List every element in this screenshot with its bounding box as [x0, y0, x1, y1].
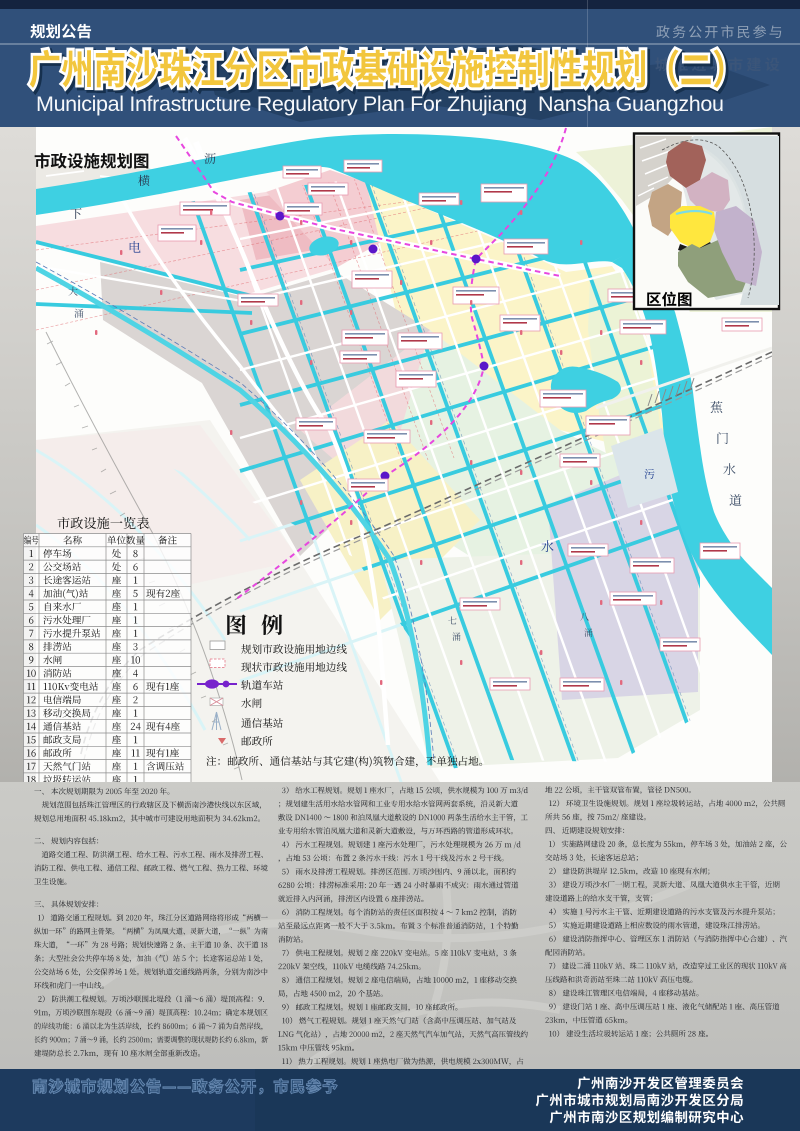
svg-text:Municipal Infrastructure Regul: Municipal Infrastructure Regulatory Plan… — [36, 92, 724, 116]
